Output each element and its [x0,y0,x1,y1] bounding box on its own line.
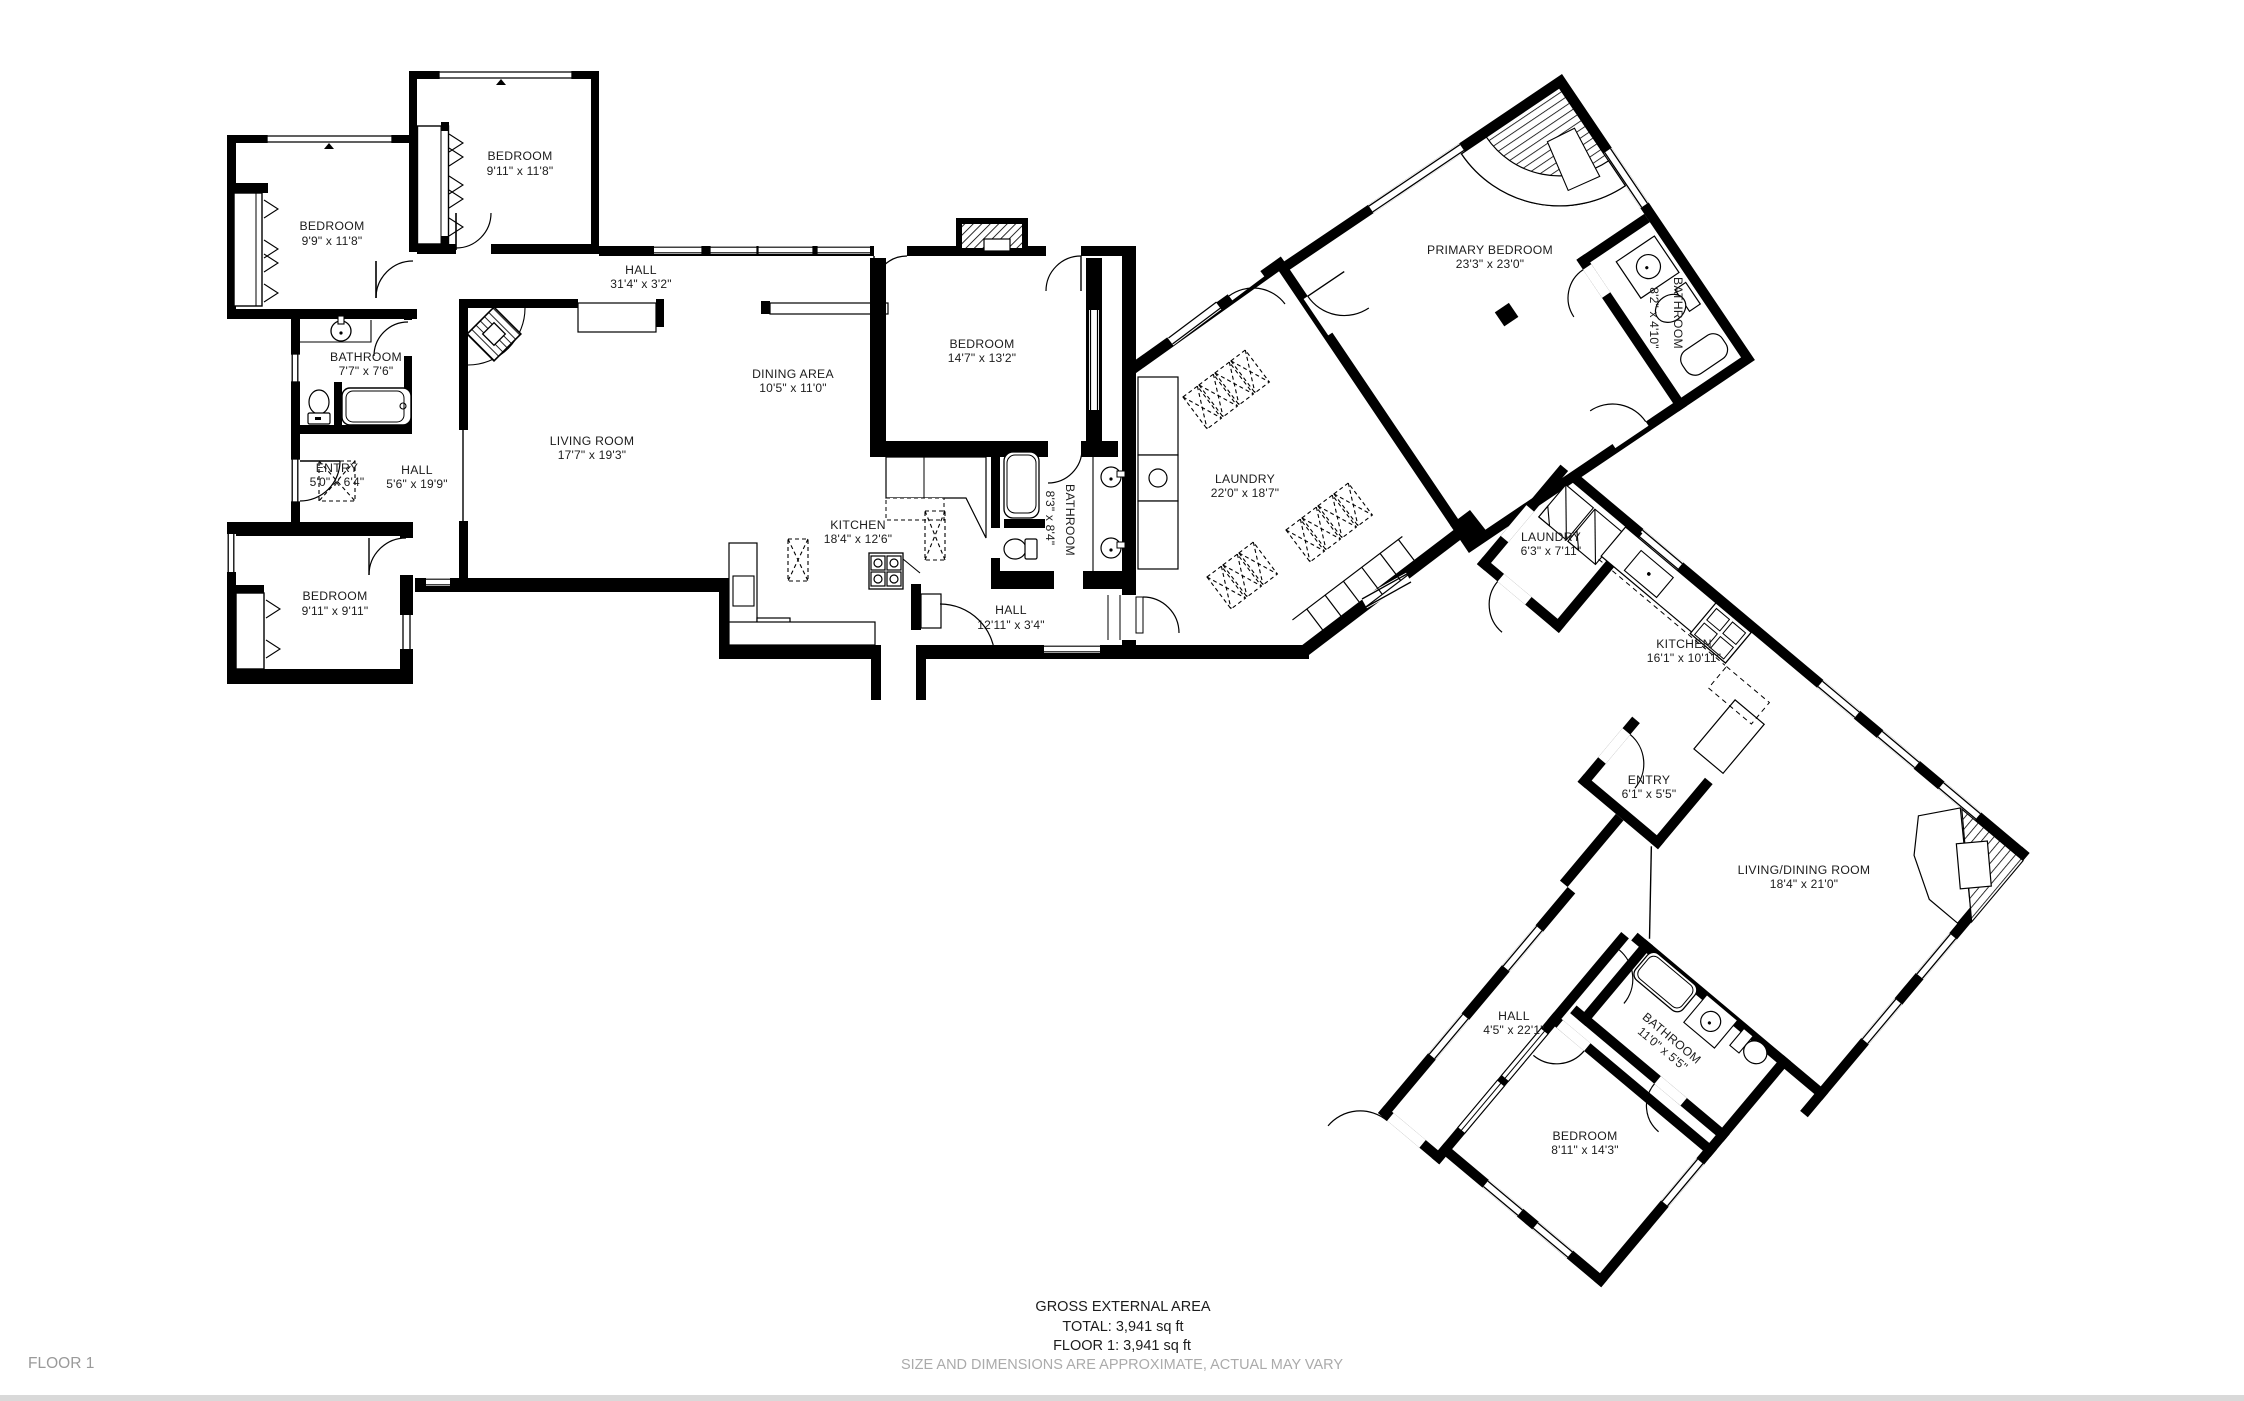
svg-text:LIVING/DINING ROOM: LIVING/DINING ROOM [1738,863,1871,877]
svg-text:16'1" x 10'11": 16'1" x 10'11" [1647,651,1721,665]
svg-text:18'4" x 21'0": 18'4" x 21'0" [1770,877,1838,891]
svg-text:GROSS EXTERNAL AREA: GROSS EXTERNAL AREA [1035,1299,1210,1315]
svg-text:8'2" x 4'10": 8'2" x 4'10" [1647,287,1661,349]
svg-text:FLOOR 1: FLOOR 1 [28,1355,94,1372]
svg-text:BATHROOM: BATHROOM [330,350,402,364]
svg-text:BEDROOM: BEDROOM [487,149,552,163]
svg-text:8'11" x 14'3": 8'11" x 14'3" [1551,1143,1619,1157]
svg-text:LAUNDRY: LAUNDRY [1521,530,1581,544]
svg-text:31'4" x 3'2": 31'4" x 3'2" [610,277,672,291]
svg-text:5'0" x 6'4": 5'0" x 6'4" [310,475,365,489]
svg-text:8'3" x 8'4": 8'3" x 8'4" [1043,491,1057,546]
svg-text:6'3" x 7'11": 6'3" x 7'11" [1521,544,1582,558]
svg-text:TOTAL: 3,941 sq ft: TOTAL: 3,941 sq ft [1062,1319,1183,1335]
svg-text:23'3" x 23'0": 23'3" x 23'0" [1456,257,1524,271]
svg-text:SIZE AND DIMENSIONS ARE APPROX: SIZE AND DIMENSIONS ARE APPROXIMATE, ACT… [901,1357,1343,1373]
svg-text:5'6" x 19'9": 5'6" x 19'9" [386,477,448,491]
svg-text:18'4" x 12'6": 18'4" x 12'6" [824,532,892,546]
svg-text:KITCHEN: KITCHEN [1656,637,1712,651]
svg-text:9'11" x 9'11": 9'11" x 9'11" [302,604,369,618]
svg-text:BEDROOM: BEDROOM [302,589,367,603]
svg-text:LAUNDRY: LAUNDRY [1215,472,1275,486]
svg-text:9'11" x 11'8": 9'11" x 11'8" [487,164,554,178]
svg-text:HALL: HALL [1498,1009,1530,1023]
svg-text:6'1" x 5'5": 6'1" x 5'5" [1622,787,1677,801]
svg-text:ENTRY: ENTRY [316,461,359,475]
svg-text:HALL: HALL [625,263,657,277]
svg-text:KITCHEN: KITCHEN [830,518,886,532]
svg-text:FLOOR 1: 3,941 sq ft: FLOOR 1: 3,941 sq ft [1053,1338,1191,1354]
svg-text:BATHROOM: BATHROOM [1671,277,1685,349]
svg-text:17'7" x 19'3": 17'7" x 19'3" [558,448,626,462]
svg-text:DINING AREA: DINING AREA [752,367,834,381]
svg-text:9'9" x 11'8": 9'9" x 11'8" [302,234,363,248]
svg-text:22'0" x 18'7": 22'0" x 18'7" [1211,486,1279,500]
svg-text:BEDROOM: BEDROOM [299,219,364,233]
svg-text:BEDROOM: BEDROOM [949,337,1014,351]
svg-text:10'5" x 11'0": 10'5" x 11'0" [759,381,827,395]
svg-text:HALL: HALL [995,603,1027,617]
svg-text:BEDROOM: BEDROOM [1552,1129,1617,1143]
svg-text:7'7" x 7'6": 7'7" x 7'6" [339,364,394,378]
svg-text:BATHROOM: BATHROOM [1063,484,1077,556]
svg-text:PRIMARY BEDROOM: PRIMARY BEDROOM [1427,243,1553,257]
svg-text:HALL: HALL [401,463,433,477]
svg-text:4'5" x 22'1": 4'5" x 22'1" [1483,1023,1545,1037]
svg-text:LIVING ROOM: LIVING ROOM [550,434,635,448]
svg-text:ENTRY: ENTRY [1628,773,1671,787]
svg-text:14'7" x 13'2": 14'7" x 13'2" [948,351,1016,365]
